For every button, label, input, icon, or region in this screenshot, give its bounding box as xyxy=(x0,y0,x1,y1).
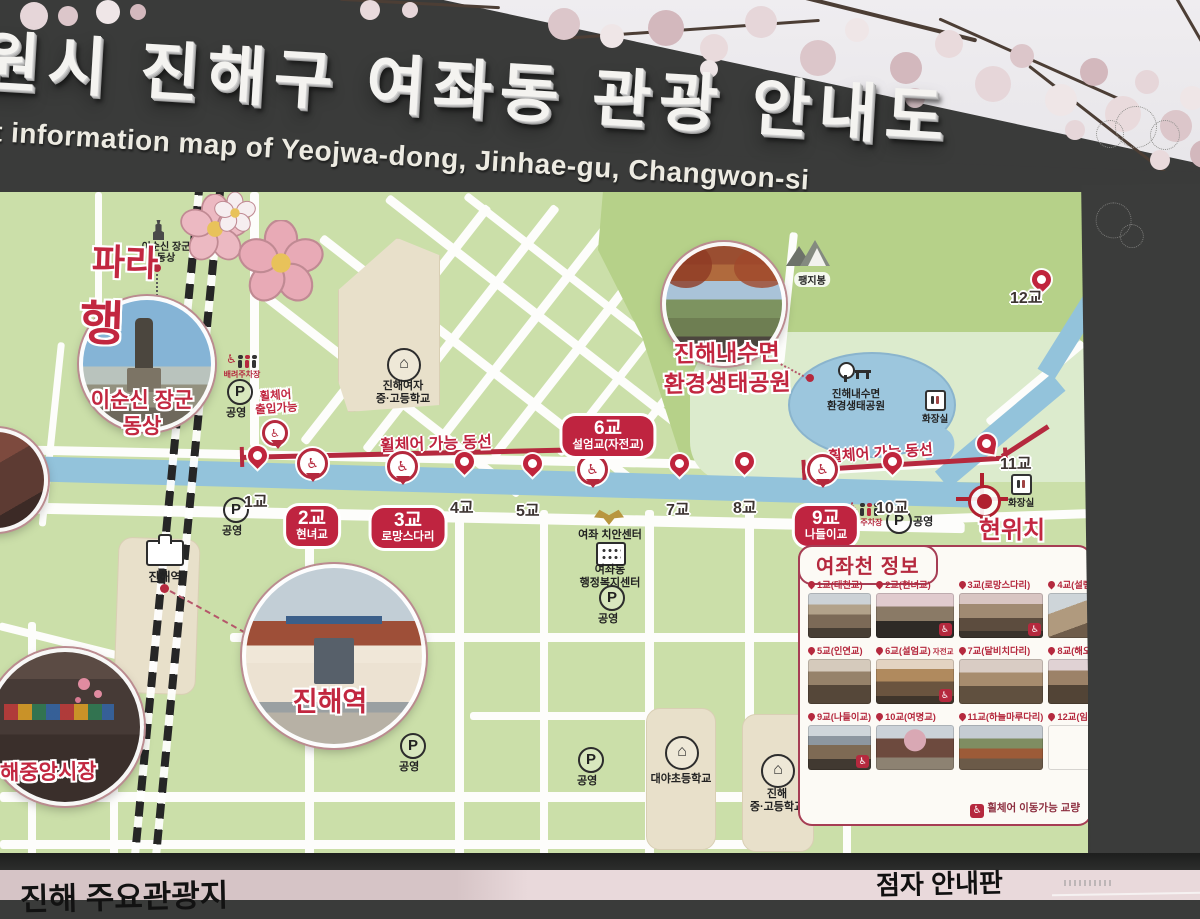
legend-item-6: 6교(설엄교) 자전교♿ xyxy=(876,643,953,704)
pin-icon xyxy=(1047,646,1057,656)
flower-decoration-icon xyxy=(1120,224,1144,248)
public-parking-label: 공영 xyxy=(399,758,419,774)
legend-note: ♿휠체어 이동가능 교량 xyxy=(970,800,1080,818)
legend-photo-7 xyxy=(959,659,1044,704)
pin-icon xyxy=(807,712,817,722)
legend-photo-8 xyxy=(1048,659,1088,704)
market-sign xyxy=(4,704,114,720)
legend-item-2: 2교(현녀교)♿ xyxy=(876,577,953,638)
pin-icon xyxy=(807,580,817,590)
public-parking-label: 공영 xyxy=(226,404,246,420)
station-photo xyxy=(242,564,426,748)
pin-icon xyxy=(957,646,967,656)
girls-school-icon: ⌂ xyxy=(387,348,421,382)
bridge-badge-2교: 2교현녀교 xyxy=(286,506,338,546)
bridge-badge-6교: 6교설엄교(자전교) xyxy=(562,416,653,456)
legend-grid: 1교(대천교)2교(현녀교)♿3교(로망스다리)♿4교(설렘교)5교(인연교)6… xyxy=(808,577,1082,770)
blossom-cluster xyxy=(648,10,684,46)
legend-photo-10 xyxy=(876,725,953,770)
blossom-cluster xyxy=(975,66,1011,102)
street xyxy=(455,510,464,858)
bridge-badge-9교: 9교나들이교 xyxy=(795,506,857,546)
small-print xyxy=(1064,880,1114,886)
station-icon xyxy=(146,540,184,566)
cloud-decoration-icon xyxy=(1150,120,1180,150)
bridge-label-4교: 4교 xyxy=(450,494,474,518)
bridge-label-1교: 1교 xyxy=(244,488,268,512)
legend-photo-5 xyxy=(808,659,871,704)
station-photo-label: 진해역 xyxy=(293,680,368,719)
blossom-cluster xyxy=(402,2,418,18)
bridge-label-10교: 10교 xyxy=(876,494,909,518)
pin-icon xyxy=(875,712,885,722)
braille-panel-title: 점자 안내판 xyxy=(876,863,1004,903)
autumn-foliage xyxy=(662,242,712,288)
wheelchair-icon: ♿ xyxy=(939,623,952,636)
bridge-wheelchair-pin-9교: ♿ xyxy=(807,454,838,485)
jinhae-school-icon: ⌂ xyxy=(761,754,795,788)
market-blossom-decor xyxy=(78,678,90,690)
market-photo-label: 해중앙시장 xyxy=(0,755,97,787)
cherry-blossom-flower xyxy=(214,192,256,234)
public-parking-label: 공영 xyxy=(222,522,242,538)
wheelchair-icon: ♿ xyxy=(970,804,984,818)
station-map-label: 진해역 xyxy=(148,568,181,585)
daeya-school-label: 대야초등학교 xyxy=(651,770,712,786)
station-location-dot xyxy=(160,584,169,593)
pin-icon xyxy=(1047,580,1057,590)
wheelchair-icon: ♿ xyxy=(1028,623,1041,636)
station-door xyxy=(314,638,354,684)
blossom-cluster xyxy=(1135,70,1159,94)
blossom-cluster xyxy=(1010,44,1034,68)
legend-item-12: 12교(임지교) xyxy=(1048,709,1088,770)
public-parking-icon: P xyxy=(599,585,625,611)
public-parking-icon: P xyxy=(227,379,253,405)
legend-item-11: 11교(하늘마루다리) xyxy=(959,709,1044,770)
legend-photo-9: ♿ xyxy=(808,725,871,770)
peak-label: 팽지봉 xyxy=(794,272,830,287)
bridge-legend-box: 여좌천 정보 1교(대천교)2교(현녀교)♿3교(로망스다리)♿4교(설렘교)5… xyxy=(798,545,1088,826)
eco-park-photo-label: 진해내수면환경생태공원 xyxy=(663,337,791,399)
blossom-cluster xyxy=(600,24,624,48)
wheelchair-icon: ♿ xyxy=(856,755,869,768)
pin-icon xyxy=(875,580,885,590)
blossom-cluster xyxy=(935,30,963,58)
blossom-cluster xyxy=(845,18,869,42)
blossom-cluster xyxy=(1180,86,1200,110)
jinhae-school-label: 진해중·고등학교 xyxy=(750,788,804,814)
legend-item-3: 3교(로망스다리)♿ xyxy=(959,577,1044,638)
statue-silhouette xyxy=(135,318,153,370)
legend-photo-12 xyxy=(1048,725,1088,770)
admin-center-icon xyxy=(596,542,626,566)
legend-item-1: 1교(대천교) xyxy=(808,577,871,638)
legend-photo-3: ♿ xyxy=(959,593,1044,638)
street xyxy=(540,510,548,858)
legend-item-7: 7교(달비치다리) xyxy=(959,643,1044,704)
street xyxy=(470,712,670,720)
eco-park-map-label: 진해내수면환경생태공원 xyxy=(827,388,885,412)
police-label: 여좌 치안센터 xyxy=(578,526,642,542)
bridge-label-8교: 8교 xyxy=(733,494,757,518)
legend-item-9: 9교(나들이교)♿ xyxy=(808,709,871,770)
railway-track xyxy=(127,192,236,858)
legend-photo-1 xyxy=(808,593,871,638)
blossom-cluster xyxy=(745,6,777,38)
public-parking-icon: P xyxy=(578,747,604,773)
public-parking-icon: P xyxy=(400,733,426,759)
care-parking-marker: ♿배려주차장 xyxy=(214,350,270,380)
slogan-fragment-1: 파라 xyxy=(91,233,159,287)
wheelchair-entry-icon: ♿ xyxy=(262,420,288,446)
blossom-cluster xyxy=(1150,150,1170,170)
bridge-wheelchair-pin-6교: ♿ xyxy=(577,454,608,485)
blossom-cluster xyxy=(360,0,380,20)
statue-photo-label: 이순신 장군동상 xyxy=(91,388,193,440)
pin-icon xyxy=(1047,712,1057,722)
wheelchair-icon: ♿ xyxy=(939,689,952,702)
bridge-label-12교: 12교 xyxy=(1010,284,1043,308)
pin-icon xyxy=(957,580,967,590)
blossom-cluster xyxy=(130,4,146,20)
girls-school-label: 진해여자중·고등학교 xyxy=(376,380,430,406)
bridge-label-11교: 11교 xyxy=(1000,450,1032,474)
tree-bench-icon xyxy=(838,362,872,384)
eco-park-location-dot xyxy=(806,374,814,382)
autumn-foliage xyxy=(734,248,786,288)
bridge-label-5교: 5교 xyxy=(516,497,540,521)
legend-item-4: 4교(설렘교) xyxy=(1048,577,1088,638)
legend-photo-11 xyxy=(959,725,1044,770)
pin-icon xyxy=(875,646,885,656)
legend-photo-6: ♿ xyxy=(876,659,953,704)
public-parking-label: 공영 xyxy=(577,772,597,788)
bridge-label-7교: 7교 xyxy=(666,496,690,520)
blossom-cluster xyxy=(548,8,580,40)
legend-item-10: 10교(여명교) xyxy=(876,709,953,770)
sign-frame-right xyxy=(1081,183,1200,885)
blossom-cluster xyxy=(1080,58,1108,86)
legend-item-8: 8교(해오름다리) xyxy=(1048,643,1088,704)
wheelchair-entry-label: 휠체어출입가능 xyxy=(254,389,298,418)
legend-photo-4 xyxy=(1048,593,1088,638)
daeya-school-icon: ⌂ xyxy=(665,736,699,770)
public-parking-label: 공영 xyxy=(598,610,618,626)
blossom-cluster xyxy=(1065,120,1085,140)
bridge-wheelchair-pin-3교: ♿ xyxy=(387,451,418,482)
bridge-wheelchair-pin-2교: ♿ xyxy=(297,448,328,479)
bridge-badge-3교: 3교로망스다리 xyxy=(372,508,445,548)
station-awning xyxy=(286,616,382,624)
slogan-fragment-2: 행 xyxy=(79,283,126,354)
public-parking-label: 공영 xyxy=(913,513,933,529)
restroom-marker: 화장실 xyxy=(922,390,948,425)
legend-photo-2: ♿ xyxy=(876,593,953,638)
map-panel: 휠체어 가능 동선 휠체어 가능 동선 파라 행 이순신 장군동상 이순신 장군… xyxy=(0,192,1088,858)
legend-item-5: 5교(인연교) xyxy=(808,643,871,704)
pin-icon xyxy=(957,712,967,722)
pin-icon xyxy=(807,646,817,656)
restroom-marker: 화장실 xyxy=(1008,474,1034,509)
blossom-cluster xyxy=(1045,84,1077,116)
current-location-label: 현위치 xyxy=(979,510,1045,545)
mountain-icon xyxy=(786,240,840,268)
photo-of-tourist-map-sign: { "header": { "title_ko": "원시 진해구 여좌동 관광… xyxy=(0,0,1200,900)
lower-sign-left-title: 진해 주요관광지 xyxy=(20,870,229,919)
